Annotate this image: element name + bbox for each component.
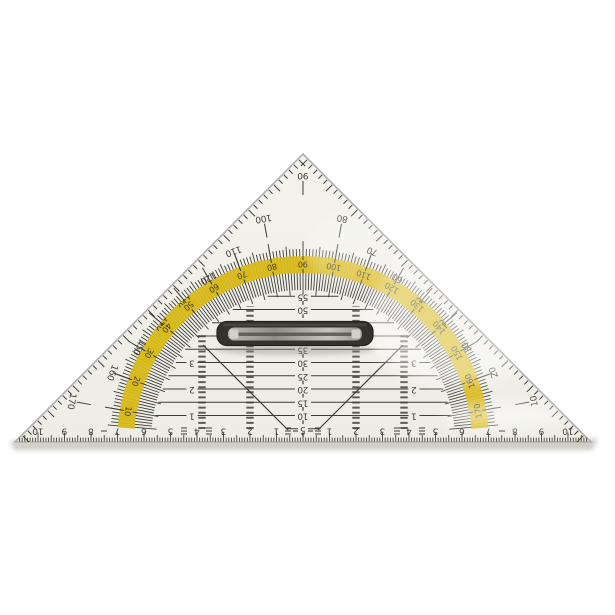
scale-number: 10 xyxy=(297,411,308,421)
scale-number: 5 xyxy=(168,426,173,436)
scale-number: 90 xyxy=(297,170,308,180)
scale-number: 2 xyxy=(411,384,416,394)
scale-number: 50 xyxy=(297,305,308,315)
scale-number: 20 xyxy=(297,384,308,394)
set-square-photo: Photograph of a transparent 45-degree se… xyxy=(0,0,615,615)
scale-number: 10 xyxy=(32,426,43,436)
grip-handle xyxy=(215,322,375,356)
scale-number: 9 xyxy=(538,426,544,436)
scale-number: 15 xyxy=(298,397,309,407)
scale-number: 1 xyxy=(327,426,332,436)
scale-number: 30 xyxy=(297,358,308,368)
scale-number: 6 xyxy=(459,426,465,436)
scale-number: 3 xyxy=(189,358,194,368)
scale-number: 25 xyxy=(298,371,309,381)
scale-number: 1 xyxy=(189,411,194,421)
scale-number: 6 xyxy=(141,426,147,436)
scale-number: 9 xyxy=(61,426,67,436)
scale-number: 90 xyxy=(298,260,308,270)
scale-number: 3 xyxy=(221,426,226,436)
scale-number: 5 xyxy=(433,426,438,436)
scale-number: 1 xyxy=(411,411,416,421)
scale-number: 1 xyxy=(274,426,279,436)
scale-number: 10 xyxy=(562,426,573,436)
scale-number: 3 xyxy=(380,426,385,436)
set-square-svg: 10 9 8 7 6 5 4 3 2 1 0 1 2 3 4 5 6 7 8 9… xyxy=(0,0,615,615)
scale-number: 8 xyxy=(88,426,94,436)
scale-number: 2 xyxy=(189,384,194,394)
scale-number: 80 xyxy=(266,261,277,273)
scale-number: 10 xyxy=(122,405,134,416)
scale-number: 5 xyxy=(300,424,305,434)
